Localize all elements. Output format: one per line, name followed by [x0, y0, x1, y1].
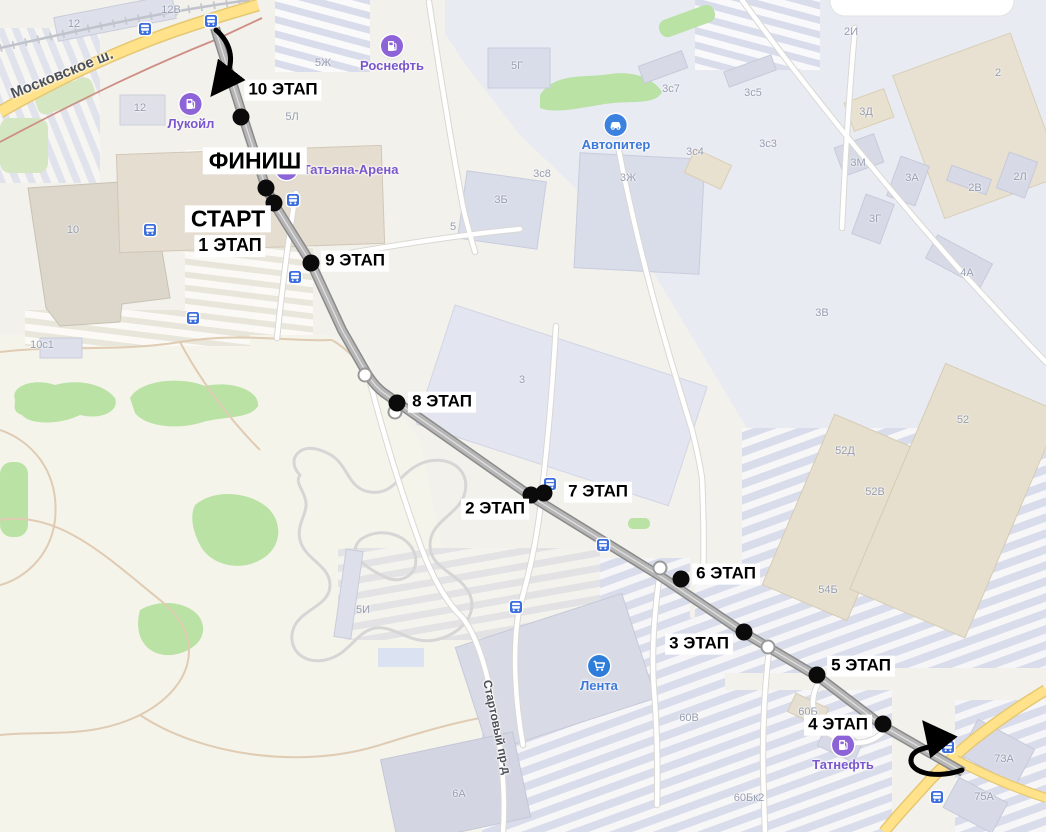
- building-label: 5Ж: [315, 57, 331, 69]
- bus-stop-icon[interactable]: [509, 600, 524, 615]
- stage-dot: [536, 485, 553, 502]
- building-label: 3М: [850, 157, 865, 169]
- building-label: 2: [995, 67, 1001, 79]
- building-label: 10с1: [30, 339, 54, 351]
- fuel-icon[interactable]: [832, 734, 854, 756]
- stage-dot: [389, 395, 406, 412]
- building-label: 3с8: [533, 168, 551, 180]
- building-label: 54Б: [818, 584, 837, 596]
- stage-dot: [673, 571, 690, 588]
- poi-label: Лента: [580, 678, 618, 693]
- bus-stop-icon[interactable]: [941, 740, 956, 755]
- stage-label: ФИНИШ: [203, 147, 307, 174]
- bus-stop-icon[interactable]: [288, 270, 303, 285]
- building-label: 5: [450, 221, 456, 233]
- stage-label: 7 ЭТАП: [564, 482, 632, 503]
- map-canvas[interactable]: 12В12121010с15Ж5Л5Г53Б3с83Ж3с73с53с43с33…: [0, 0, 1046, 832]
- building-label: 60Бк2: [734, 792, 764, 804]
- bus-stop-icon[interactable]: [204, 14, 219, 29]
- bus-stop-icon[interactable]: [930, 790, 945, 805]
- building-label: 3В: [815, 307, 828, 319]
- stage-label: 2 ЭТАП: [461, 499, 529, 520]
- poi-label: Татнефть: [812, 757, 874, 772]
- stage-label: 8 ЭТАП: [408, 392, 476, 413]
- poi-label: Татьяна-Арена: [303, 162, 399, 177]
- building-label: 5Г: [511, 60, 523, 72]
- poi-label: Роснефть: [360, 58, 424, 73]
- building-label: 52: [957, 414, 969, 426]
- road-junction-circle: [358, 368, 373, 383]
- building-label: 3с3: [759, 138, 777, 150]
- poi-rosneft[interactable]: Роснефть: [360, 35, 424, 73]
- stage-dot: [809, 667, 826, 684]
- bus-stop-icon[interactable]: [286, 193, 301, 208]
- building-label: 5И: [356, 604, 370, 616]
- building-label: 2И: [844, 26, 858, 38]
- building-label: 60В: [679, 712, 699, 724]
- building-label: 3Д: [859, 106, 873, 118]
- poi-lenta[interactable]: Лента: [580, 655, 618, 693]
- building-label: 3Г: [869, 213, 881, 225]
- bus-stop-icon[interactable]: [143, 223, 158, 238]
- stage-label: 10 ЭТАП: [244, 80, 321, 101]
- poi-tatneft[interactable]: Татнефть: [812, 734, 874, 772]
- fuel-icon[interactable]: [381, 35, 403, 57]
- building-label: 5Л: [285, 111, 298, 123]
- stage-dot: [875, 716, 892, 733]
- building-label: 52В: [865, 486, 885, 498]
- street-label-1: Стартовый пр-д: [480, 679, 514, 776]
- stage-label: 6 ЭТАП: [692, 564, 760, 585]
- stage-dot: [233, 109, 250, 126]
- street-label-0: Московское ш.: [8, 46, 116, 103]
- bus-stop-icon[interactable]: [138, 22, 153, 37]
- building-label: 12: [68, 18, 80, 30]
- stage-label: СТАРТ: [185, 205, 271, 232]
- road-junction-circle: [653, 561, 668, 576]
- poi-avtopiter[interactable]: Автопитер: [582, 114, 651, 152]
- poi-lukoil[interactable]: Лукойл: [168, 93, 215, 131]
- stage-dot: [736, 624, 753, 641]
- building-label: 12В: [161, 4, 181, 16]
- building-label: 3с4: [686, 146, 704, 158]
- building-label: 12: [134, 102, 146, 114]
- building-label: 3Ж: [620, 172, 636, 184]
- building-label: 3Б: [494, 194, 507, 206]
- building-label: 3: [519, 374, 525, 386]
- building-label: 2В: [968, 182, 981, 194]
- building-label: 3с5: [744, 87, 762, 99]
- stage-label: 1 ЭТАП: [194, 235, 265, 257]
- stage-dot: [303, 255, 320, 272]
- stage-label: 9 ЭТАП: [321, 251, 389, 272]
- building-label: 2Л: [1013, 171, 1026, 183]
- fuel-icon[interactable]: [180, 93, 202, 115]
- car-icon[interactable]: [605, 114, 627, 136]
- building-label: 75А: [974, 791, 994, 803]
- bus-stop-icon[interactable]: [186, 311, 201, 326]
- bus-stop-icon[interactable]: [596, 538, 611, 553]
- building-label: 6А: [452, 788, 465, 800]
- road-junction-circle: [761, 640, 776, 655]
- building-label: 4А: [960, 267, 973, 279]
- building-label: 52Д: [835, 445, 855, 457]
- stage-label: 5 ЭТАП: [827, 656, 895, 677]
- poi-label: Автопитер: [582, 137, 651, 152]
- building-label: 73А: [994, 753, 1014, 765]
- building-label: 3А: [905, 172, 918, 184]
- building-label: 10: [67, 224, 79, 236]
- building-label: 3с7: [662, 83, 680, 95]
- poi-label: Лукойл: [168, 116, 215, 131]
- stage-label: 3 ЭТАП: [665, 634, 733, 655]
- map-overlay: 12В12121010с15Ж5Л5Г53Б3с83Ж3с73с53с43с33…: [0, 0, 1046, 832]
- cart-icon[interactable]: [588, 655, 610, 677]
- stage-label: 4 ЭТАП: [804, 715, 872, 736]
